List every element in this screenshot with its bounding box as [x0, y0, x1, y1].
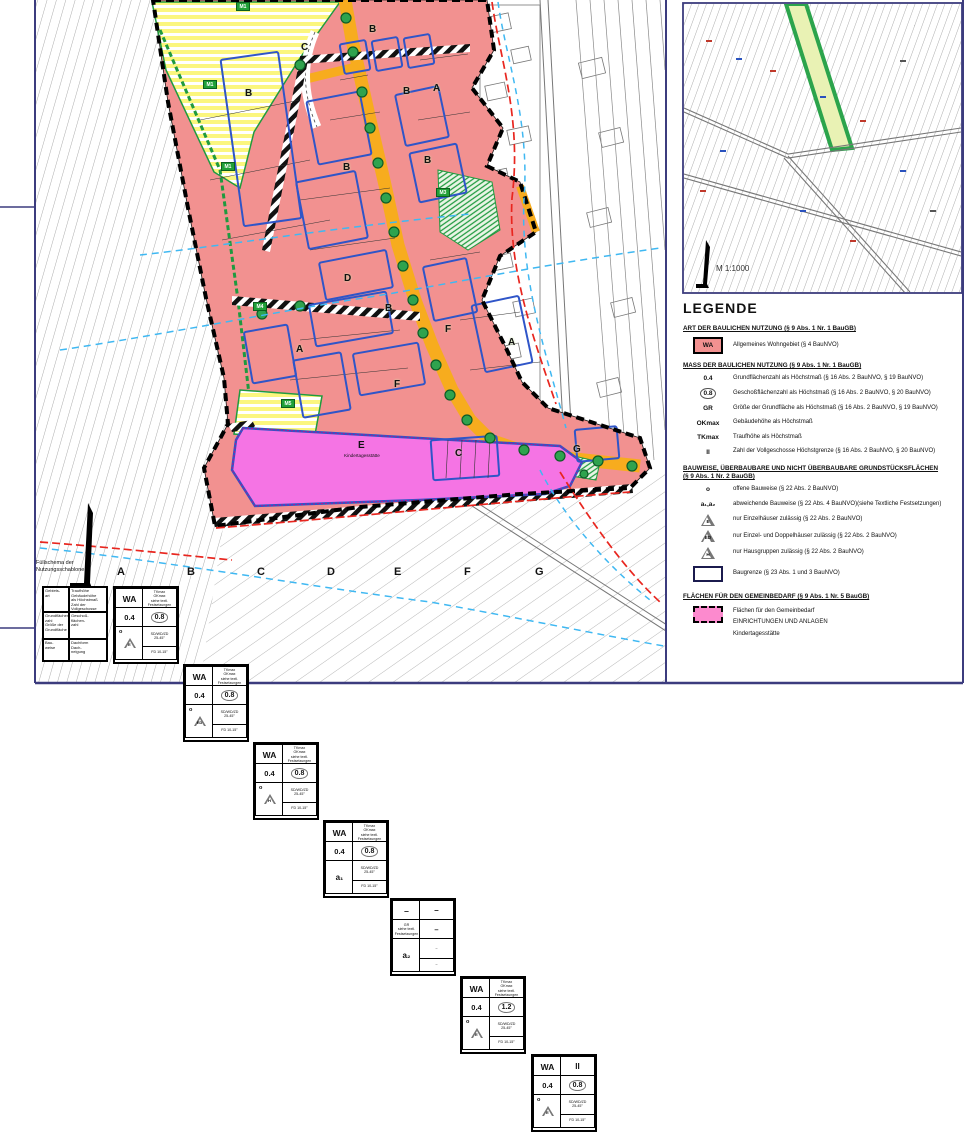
cell-roof1: SD/WD/ZD 25-45° [489, 1016, 524, 1038]
legend-item-offene: o offene Bauweise (§ 22 Abs. 2 BauNVO) [683, 485, 961, 495]
roof1-text: SD/WD/ZD 25-45° [498, 1023, 516, 1031]
gfz-value: 0.8 [361, 846, 379, 857]
bauweise-o: o [537, 1097, 540, 1103]
grz-value: 0.4 [471, 1003, 481, 1012]
cell-grz: 0.4 [185, 685, 214, 706]
triangle-letter: E [542, 1110, 554, 1115]
grz-value: 0.4 [542, 1081, 552, 1090]
legend-section2-header: MASS DER BAULICHEN NUTZUNG (§ 9 Abs. 1 N… [683, 362, 961, 370]
cell-gebietsart: WA [255, 744, 284, 765]
schablone-box: WAII0.40.8oESD/WD/ZD 25-45°FD 10-15° [531, 1054, 597, 1132]
cell-grz: 0.4 [115, 607, 144, 628]
cell-hoehen: TKmax OKmax siehe textl. Festsetzungen [489, 978, 524, 999]
triangle-e-icon: E [701, 514, 715, 526]
cell-hoehen: TKmax OKmax siehe textl. Festsetzungen [282, 744, 317, 765]
cell-roof2: FD 10-15° [282, 802, 317, 816]
schablone-column-letter: G [535, 566, 544, 578]
gfz-value: 1.2 [498, 1002, 516, 1013]
grz-value: 0.4 [124, 613, 134, 622]
gfz-value: 0.8 [291, 768, 309, 779]
zone-label: B [403, 86, 410, 97]
inset-scale-label: M 1:1000 [716, 264, 749, 273]
cell-roof1: SD/WD/ZD 25-45° [352, 860, 387, 882]
gemeinbedarf-lines: Flächen für den Gemeinbedarf EINRICHTUNG… [733, 606, 828, 640]
measure-marker: M1 [203, 80, 217, 89]
cell-gebietsart: WA [533, 1056, 562, 1077]
bauweise-ab: a₂ [402, 951, 410, 960]
cell-bauweise: oH [255, 782, 284, 816]
cell-roof1: SD/WD/ZD 25-45° [282, 782, 317, 804]
grz-value: 0.4 [264, 769, 274, 778]
cell-roof2: FD 10-15° [489, 1036, 524, 1050]
cell-hoehen: TKmax OKmax siehe textl. Festsetzungen [352, 822, 387, 843]
cell-hoehen: TKmax OKmax siehe textl. Festsetzungen [212, 666, 247, 687]
zone-label: A [433, 83, 440, 94]
key-bauweise: Bau- weise [43, 639, 69, 661]
zone-label: B [385, 303, 392, 314]
cell-bauweise: oE [462, 1016, 491, 1050]
cell-grz: 0.4 [255, 763, 284, 784]
schablone-box: WATKmax OKmax siehe textl. Festsetzungen… [323, 820, 389, 898]
cell-bauweise: oE [115, 626, 144, 660]
cell-grz: 0.4 [325, 841, 354, 862]
cell-gfz: 0.8 [282, 763, 317, 784]
zone-label: B [369, 24, 376, 35]
bauweise-o: o [259, 785, 262, 791]
zone-label: F [445, 324, 451, 335]
roof2-text: FD 10-15° [221, 729, 237, 733]
legend-section3-header: BAUWEISE, ÜBERBAUBARE UND NICHT ÜBERBAUB… [683, 465, 961, 481]
bauweise-triangle-icon: H [264, 794, 276, 804]
triangle-letter: E [124, 642, 136, 647]
cell-roof2: FD 10-15° [212, 724, 247, 738]
cell-roof1: SD/WD/ZD 25-45° [560, 1094, 595, 1116]
roof2-text: FD 10-15° [291, 807, 307, 811]
schablone-box: ––GR siehe textl. Festsetzungen–a₂–– [390, 898, 456, 976]
cell-hoehen: II [560, 1056, 595, 1077]
key-hoehen: Traufhöhe Gebäudehöhe als Höchstmaß Zahl… [69, 587, 107, 612]
measure-marker: M5 [281, 399, 295, 408]
cell-roof1: SD/WD/ZD 25-45° [142, 626, 177, 648]
cell-gfz: 0.8 [142, 607, 177, 628]
cell-gebietsart: WA [185, 666, 214, 687]
schablone-column-letter: B [187, 566, 195, 578]
zone-label: D [344, 273, 351, 284]
schablone-box: WATKmax OKmax siehe textl. Festsetzungen… [183, 664, 249, 742]
gemeinbedarf-swatch [693, 606, 723, 623]
cell-bauweise: oE [533, 1094, 562, 1128]
cell-hoehen: TKmax OKmax siehe textl. Festsetzungen [142, 588, 177, 609]
measure-marker: M3 [436, 188, 450, 197]
legend-item-gr: GR Größe der Grundfläche als Höchstmaß (… [683, 404, 961, 414]
zone-label: A [296, 344, 303, 355]
gfz-value: 0.8 [151, 612, 169, 623]
triangle-letter: H [264, 798, 276, 803]
cell-bauweise: a₂ [392, 938, 421, 972]
plan-sheet: { "page": { "inset_scale": "M 1:1000" },… [0, 0, 975, 715]
roof2-text: – [436, 963, 438, 967]
legend-title: LEGENDE [683, 300, 961, 316]
cell-gfz: 0.8 [352, 841, 387, 862]
zone-label: B [245, 88, 252, 99]
roof1-text: SD/WD/ZD 25-45° [569, 1101, 587, 1109]
wa-swatch: WA [693, 337, 723, 354]
legend-item-gfz: 0.8 Geschoßflächenzahl als Höchstmaß (§ … [683, 388, 961, 399]
legend-item-okmax: OKmax Gebäudehöhe als Höchstmaß [683, 418, 961, 428]
zone-label: A [508, 337, 515, 348]
cell-gebietsart: WA [462, 978, 491, 999]
bauweise-triangle-icon: E [471, 1028, 483, 1038]
gfz-value: – [434, 925, 438, 934]
key-grz: Grundflächen- zahl Größe der Grundfläche [43, 612, 69, 639]
bauweise-triangle-icon: E [124, 638, 136, 648]
inset-map [684, 4, 961, 294]
legend-item-wa: WA Allgemeines Wohngebiet (§ 4 BauNVO) [683, 337, 961, 354]
cell-gebietsart: WA [325, 822, 354, 843]
legend-section1-header: ART DER BAULICHEN NUTZUNG (§ 9 Abs. 1 Nr… [683, 325, 961, 333]
cell-roof2: FD 10-15° [142, 646, 177, 660]
zone-label: B [343, 162, 350, 173]
roof1-text: SD/WD/ZD 25-45° [151, 633, 169, 641]
cell-gfz: 0.8 [212, 685, 247, 706]
measure-marker: M1 [221, 162, 235, 171]
zone-label: F [394, 379, 400, 390]
legend-item-abweichend: a₁,a₂ abweichende Bauweise (§ 22 Abs. 4 … [683, 499, 961, 509]
triangle-h-icon: H [701, 547, 715, 559]
zone-label: C [455, 448, 462, 459]
schablone-box: WATKmax OKmax siehe textl. Festsetzungen… [253, 742, 319, 820]
bauweise-triangle-icon: E [542, 1106, 554, 1116]
legend-section4-header: FLÄCHEN FÜR DEN GEMEINBEDARF (§ 9 Abs. 1… [683, 593, 961, 601]
cell-bauweise: oED [185, 704, 214, 738]
roof2-text: FD 10-15° [361, 885, 377, 889]
cell-bauweise: a₁ [325, 860, 354, 894]
schablone-column-letter: C [257, 566, 265, 578]
schablone-column-letter: F [464, 566, 471, 578]
key-gebietsart: Gebiets- art [43, 587, 69, 612]
cell-gfz: 0.8 [560, 1075, 595, 1096]
legend-item-baugrenze: Baugrenze (§ 23 Abs. 1 und 3 BauNVO) [683, 566, 961, 582]
legend-item-einzelhaus: E nur Einzelhäuser zulässig (§ 22 Abs. 2… [683, 514, 961, 526]
cell-roof2: – [419, 958, 454, 972]
cell-gebietsart: – [392, 900, 421, 921]
legend-panel: LEGENDE ART DER BAULICHEN NUTZUNG (§ 9 A… [683, 300, 961, 644]
roof1-text: SD/WD/ZD 25-45° [291, 789, 309, 797]
bauweise-triangle-icon: ED [194, 716, 206, 726]
main-map [35, 0, 684, 683]
triangle-letter: ED [194, 720, 206, 725]
legend-item-grz: 0.4 Grundflächenzahl als Höchstmaß (§ 16… [683, 374, 961, 384]
gfz-value: 0.8 [221, 690, 239, 701]
cell-roof2: FD 10-15° [352, 880, 387, 894]
schablone-column-letter: D [327, 566, 335, 578]
bauweise-ab: a₁ [336, 873, 344, 882]
triangle-ed-icon: ED [701, 530, 715, 542]
zone-label: C [301, 42, 308, 53]
kita-letter-label: E [358, 440, 365, 451]
roof2-text: FD 10-15° [569, 1119, 585, 1123]
legend-item-einzeldoppel: ED nur Einzel- und Doppelhäuser zulässig… [683, 530, 961, 542]
zone-label: B [424, 155, 431, 166]
kita-name-label: Kindertagesstätte [344, 453, 380, 458]
cell-gebietsart: WA [115, 588, 144, 609]
grz-value: 0.4 [194, 691, 204, 700]
zone-label: G [573, 444, 581, 455]
roof2-text: FD 10-15° [151, 651, 167, 655]
legend-item-geschosse: II Zahl der Vollgeschosse Höchstgrenze (… [683, 447, 961, 457]
baugrenze-swatch [693, 566, 723, 582]
bauweise-o: o [466, 1019, 469, 1025]
schablone-column-letter: E [394, 566, 401, 578]
grz-value: 0.4 [334, 847, 344, 856]
roof2-text: FD 10-15° [498, 1041, 514, 1045]
cell-grz: 0.4 [462, 997, 491, 1018]
key-dach: Dachform Dach- neigung [69, 639, 107, 661]
gfz-value: 0.8 [569, 1080, 587, 1091]
cell-roof2: FD 10-15° [560, 1114, 595, 1128]
cell-grz: 0.4 [533, 1075, 562, 1096]
schablone-column-letter: A [117, 566, 125, 578]
schablone-box: WATKmax OKmax siehe textl. Festsetzungen… [113, 586, 179, 664]
cell-gfz: – [419, 919, 454, 940]
measure-marker: M4 [253, 302, 267, 311]
grz-text: GR siehe textl. Festsetzungen [395, 923, 419, 935]
roof1-text: SD/WD/ZD 25-45° [361, 867, 379, 875]
cell-roof1: SD/WD/ZD 25-45° [212, 704, 247, 726]
cell-grz: GR siehe textl. Festsetzungen [392, 919, 421, 940]
triangle-letter: E [471, 1032, 483, 1037]
schablone-key-table: Gebiets- art Traufhöhe Gebäudehöhe als H… [42, 586, 108, 662]
roof1-text: SD/WD/ZD 25-45° [221, 711, 239, 719]
roof1-text: – [436, 947, 438, 951]
legend-item-gemeinbedarf: Flächen für den Gemeinbedarf EINRICHTUNG… [683, 606, 961, 640]
key-gfz: Geschoß- flächen- zahl [69, 612, 107, 639]
bauweise-o: o [119, 629, 122, 635]
legend-item-hausgruppen: H nur Hausgruppen zulässig (§ 22 Abs. 2 … [683, 547, 961, 559]
legend-item-tkmax: TKmax Traufhöhe als Höchstmaß [683, 433, 961, 443]
schablone-box: WATKmax OKmax siehe textl. Festsetzungen… [460, 976, 526, 1054]
cell-hoehen: – [419, 900, 454, 921]
schablone-title: Füllschema derNutzungsschablone [36, 560, 116, 573]
cell-roof1: – [419, 938, 454, 960]
measure-marker: M1 [236, 2, 250, 11]
cell-gfz: 1.2 [489, 997, 524, 1018]
bauweise-o: o [189, 707, 192, 713]
